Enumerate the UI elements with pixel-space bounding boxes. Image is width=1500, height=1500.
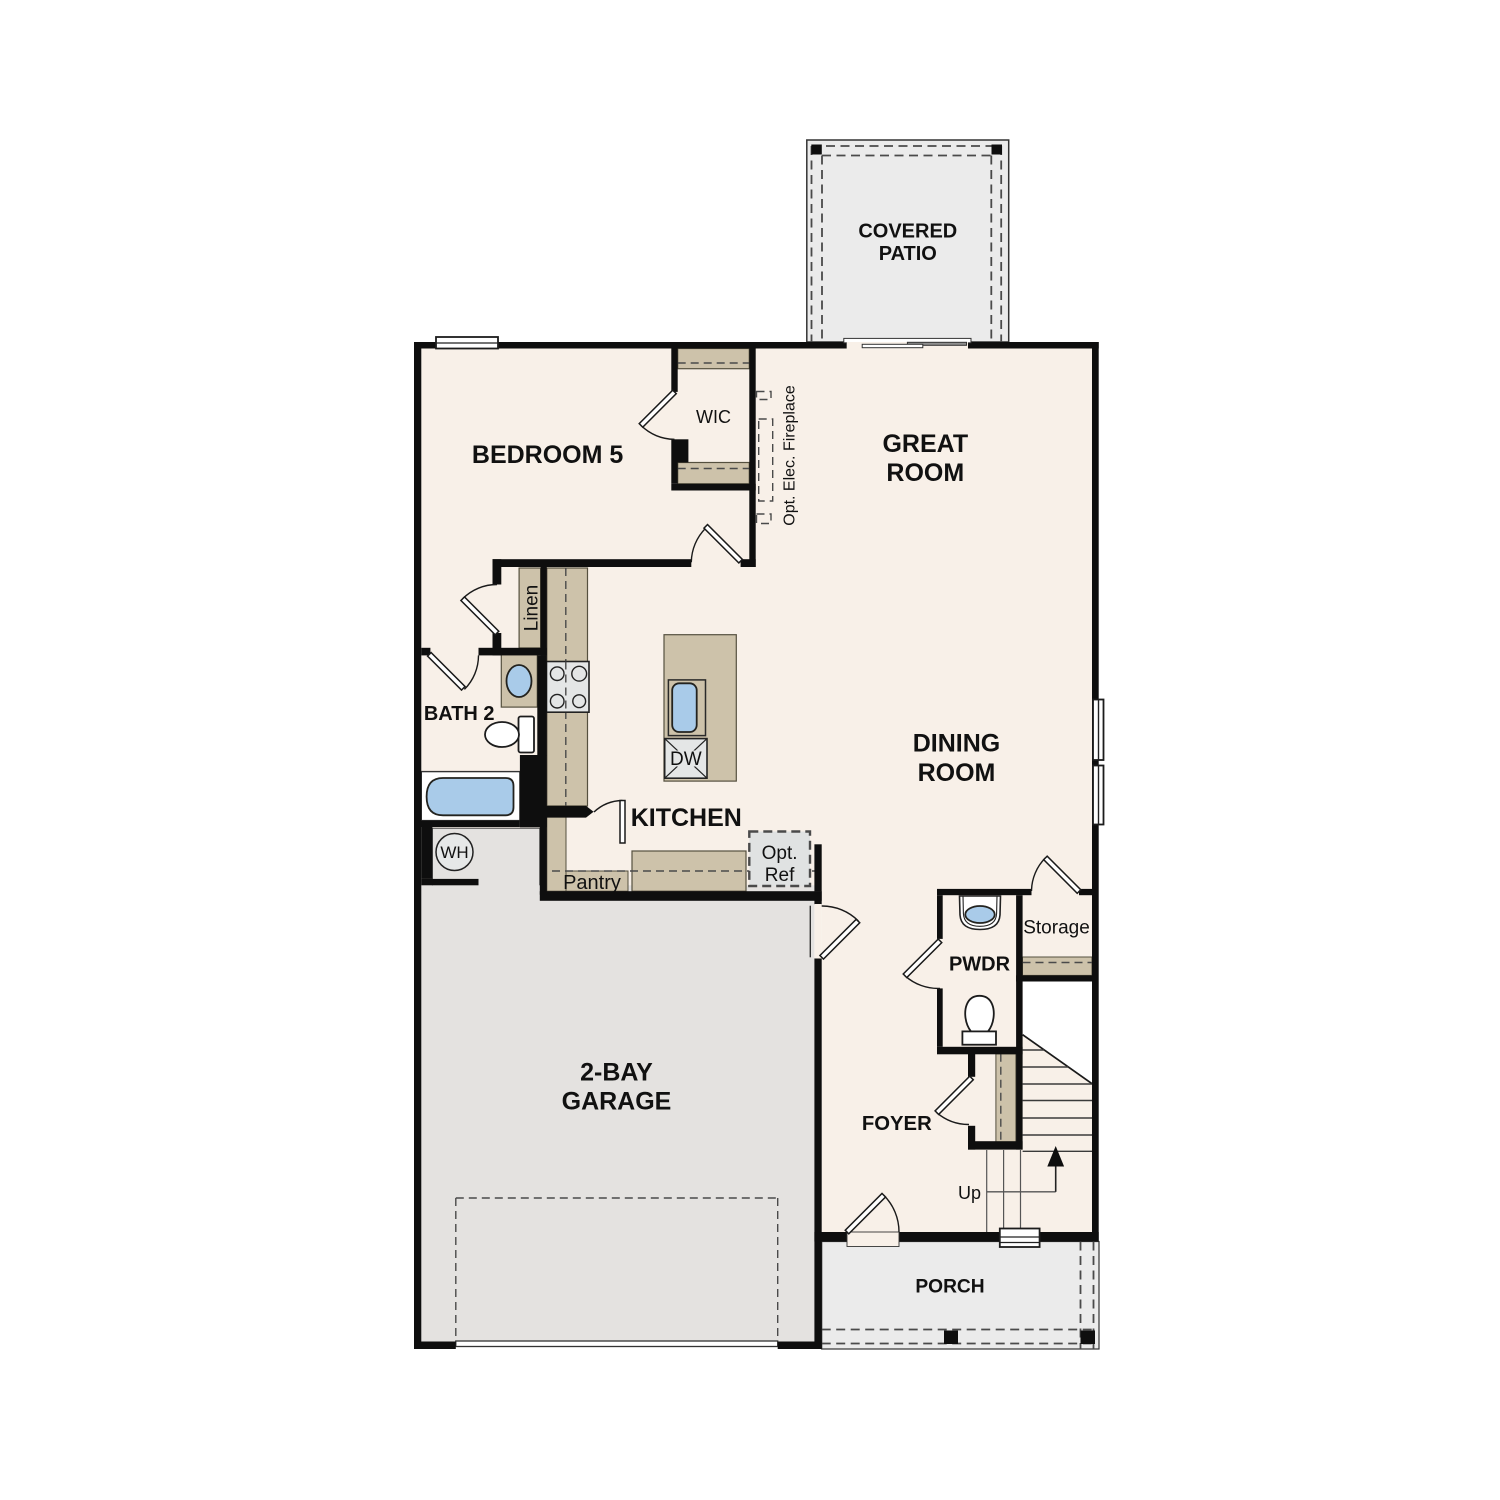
svg-text:ROOM: ROOM <box>886 459 964 487</box>
svg-text:FOYER: FOYER <box>862 1113 932 1135</box>
svg-text:KITCHEN: KITCHEN <box>631 804 742 832</box>
svg-text:PWDR: PWDR <box>949 954 1011 976</box>
svg-text:Ref: Ref <box>765 865 795 886</box>
svg-text:Opt. Elec. Fireplace: Opt. Elec. Fireplace <box>782 385 799 526</box>
svg-text:DINING: DINING <box>913 729 1001 757</box>
svg-text:DW: DW <box>670 749 702 770</box>
svg-text:PATIO: PATIO <box>879 243 937 265</box>
svg-text:GARAGE: GARAGE <box>562 1088 672 1116</box>
svg-text:Storage: Storage <box>1023 918 1090 939</box>
svg-text:GREAT: GREAT <box>882 430 968 458</box>
svg-text:WIC: WIC <box>696 407 731 427</box>
svg-text:BEDROOM 5: BEDROOM 5 <box>472 441 624 469</box>
svg-text:Pantry: Pantry <box>563 872 621 894</box>
svg-text:PORCH: PORCH <box>915 1277 984 1298</box>
svg-text:2-BAY: 2-BAY <box>580 1059 653 1087</box>
svg-text:Opt.: Opt. <box>762 843 798 864</box>
svg-text:Linen: Linen <box>522 585 543 632</box>
svg-text:BATH 2: BATH 2 <box>424 703 495 725</box>
svg-text:COVERED: COVERED <box>858 221 957 243</box>
svg-text:Up: Up <box>958 1183 981 1203</box>
svg-text:WH: WH <box>440 843 468 862</box>
svg-text:ROOM: ROOM <box>918 759 996 787</box>
